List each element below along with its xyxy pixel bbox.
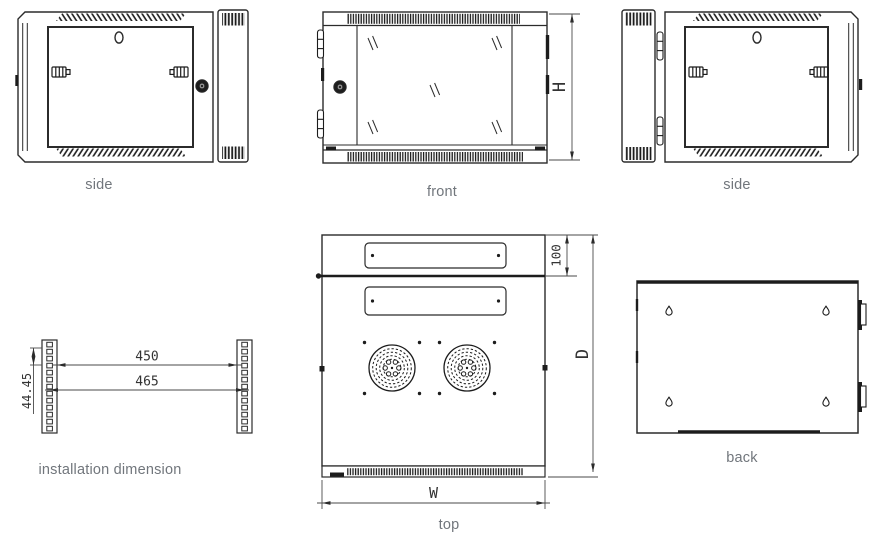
rear-frame-panel [622,10,655,162]
bottom-vent-strip [56,149,186,157]
side-latch-mark [543,365,548,371]
hinge-icon [318,110,324,138]
cabinet-body-top [316,235,548,477]
depth-dimension: D [548,235,598,477]
hinge-icon [318,30,324,58]
edge-mark [636,299,638,311]
cabinet-body-back [636,281,866,433]
vent-slots [626,13,652,26]
hinge-icon [657,117,663,145]
foot-mark [326,147,336,151]
back-view-drawing [630,275,873,440]
dim-width-label: W [429,484,439,502]
top-section-dimension: 100 [545,235,598,276]
dim-arrow-down [565,268,569,277]
dim-arrow-up [32,348,36,357]
lock-icon [334,81,346,93]
side-view-left-drawing [10,5,260,167]
pivot-dot [316,273,321,278]
top-vent-strip [693,14,823,22]
catch-mark [546,75,549,94]
vent-slots [222,147,245,160]
edge-mark [636,351,638,363]
dim-arrow-up [591,235,595,244]
side-left-caption: side [85,177,112,193]
lock-icon [196,80,208,92]
front-view-drawing: H [290,5,590,167]
mounting-rail-left [42,340,57,433]
installation-caption: installation dimension [38,462,181,478]
top-view-drawing: W 100 D [300,228,600,518]
mounting-rail-right [237,340,252,433]
dim-top-section-label: 100 [549,244,564,267]
width-dimension: W [317,480,550,509]
door-pivot-mark [15,75,18,86]
installation-dimension-drawing: 450 465 44.45 [10,335,290,443]
vent-slots [626,147,652,160]
dim-inner-span-label: 450 [135,350,158,365]
hinge-pin-mark [321,68,324,81]
door-pivot-mark [859,79,862,90]
cabinet-body-front [318,12,550,163]
hinge-icon [861,386,867,407]
front-caption: front [427,184,457,200]
hinge-icon [657,32,663,60]
dim-arrow-down [570,152,574,161]
cabinet-body-side-left [15,10,248,162]
cabinet-body-side-right [622,10,862,162]
rail-unit-pitch-dimension: 44.45 [20,348,42,414]
top-vent-strip [56,14,186,22]
dim-arrow-left [57,363,66,367]
dim-depth-label: D [573,349,593,359]
dim-arrow-down [32,357,36,366]
bottom-vent-strip [347,152,523,162]
hinge-pin-mark [330,473,344,477]
rear-frame-panel [218,10,248,162]
dim-arrow-down [591,464,595,473]
dim-arrow-right [229,363,238,367]
door-vent-strip [347,468,523,475]
side-view-right-drawing [612,5,868,167]
top-caption: top [439,517,460,533]
dim-arrow-left [322,501,331,505]
vent-slots [222,13,245,26]
dim-unit-pitch-label: 44.45 [20,373,34,409]
rail-center-span-dimension: 465 [45,375,249,392]
dim-arrow-up [570,14,574,23]
hinge-icon [861,304,867,325]
side-right-caption: side [723,177,750,193]
page: H [0,0,873,539]
dim-height-label: H [550,82,570,92]
catch-mark [546,35,549,59]
dim-arrow-right [537,501,546,505]
top-vent-strip [347,14,520,24]
dim-arrow-up [565,235,569,244]
height-dimension: H [549,14,580,160]
foot-mark [535,147,545,151]
dim-center-span-label: 465 [135,375,158,390]
back-caption: back [726,450,757,466]
rail-inner-span-dimension: 450 [52,350,242,367]
bottom-vent-strip [693,149,823,157]
side-latch-mark [320,366,325,372]
